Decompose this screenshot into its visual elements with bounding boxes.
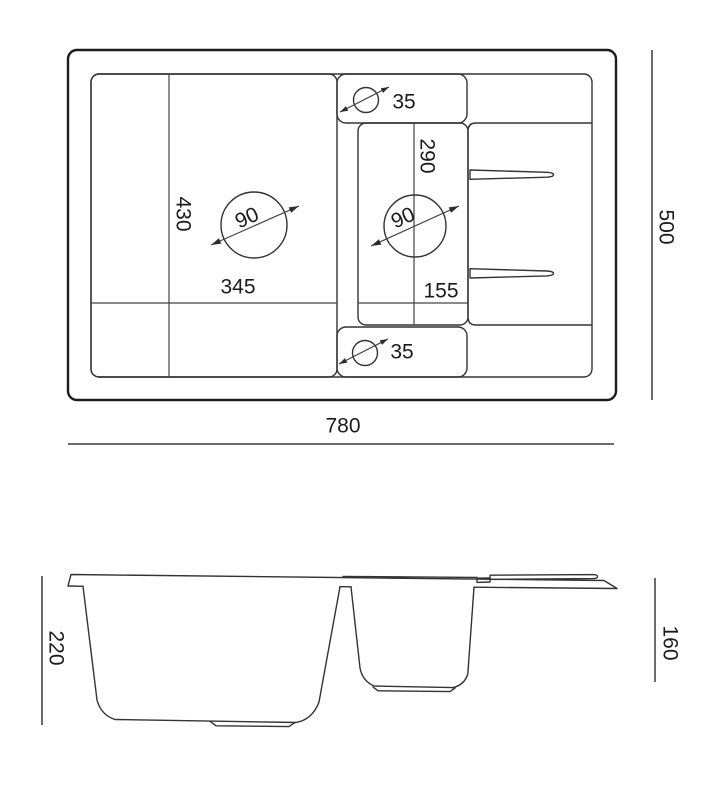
dim-label-tap-hole-top: 35 xyxy=(392,91,415,114)
main-bowl-outline xyxy=(91,74,337,377)
arrowhead xyxy=(380,339,388,345)
arrowhead xyxy=(211,238,221,245)
inner-rim-outline xyxy=(91,74,592,377)
dim-label-overall-width: 780 xyxy=(325,415,360,438)
tap-hole-bottom-circle xyxy=(353,341,378,366)
arrowhead xyxy=(449,206,459,213)
main-bowl-section xyxy=(83,586,340,722)
drainboard-edge-step xyxy=(477,578,490,582)
tap-hole-top-circle xyxy=(354,88,379,113)
top-view: 430 345 90 290 155 90 35 35 780 500 xyxy=(68,50,678,444)
arrowhead xyxy=(289,206,299,213)
drainboard-outline xyxy=(468,123,592,325)
drainboard-surface-line xyxy=(343,576,477,577)
dim-label-main-drain: 90 xyxy=(232,203,263,234)
front-view: 220 160 xyxy=(42,575,682,727)
arrowhead xyxy=(340,106,348,112)
rim-underside-right xyxy=(474,587,617,588)
dim-label-half-bowl-length: 290 xyxy=(416,138,439,173)
technical-drawing-page: 430 345 90 290 155 90 35 35 780 500 220 … xyxy=(0,0,721,800)
dim-label-main-bowl-length: 430 xyxy=(172,196,195,231)
dim-label-main-bowl-width: 345 xyxy=(220,276,255,299)
dim-label-half-bowl-depth: 160 xyxy=(659,625,682,660)
tap-hole-bottom-diameter-line xyxy=(339,339,388,364)
tap-hole-top-diameter-line xyxy=(340,87,389,112)
half-bowl-section xyxy=(351,587,474,688)
dim-label-overall-depth: 500 xyxy=(655,209,678,244)
drainboard-edge-lip xyxy=(490,575,598,580)
drainer-groove-top xyxy=(470,170,554,179)
outer-rim-outline xyxy=(68,50,616,400)
dim-label-main-bowl-depth: 220 xyxy=(45,630,68,665)
arrowhead xyxy=(339,358,347,364)
drainer-groove-bottom xyxy=(470,269,554,278)
dim-label-half-bowl-width: 155 xyxy=(423,280,458,303)
arrowhead xyxy=(371,239,381,246)
dim-label-tap-hole-bottom: 35 xyxy=(390,341,413,364)
arrowhead xyxy=(381,87,389,93)
sink-technical-drawing: 430 345 90 290 155 90 35 35 780 500 220 … xyxy=(0,0,721,800)
